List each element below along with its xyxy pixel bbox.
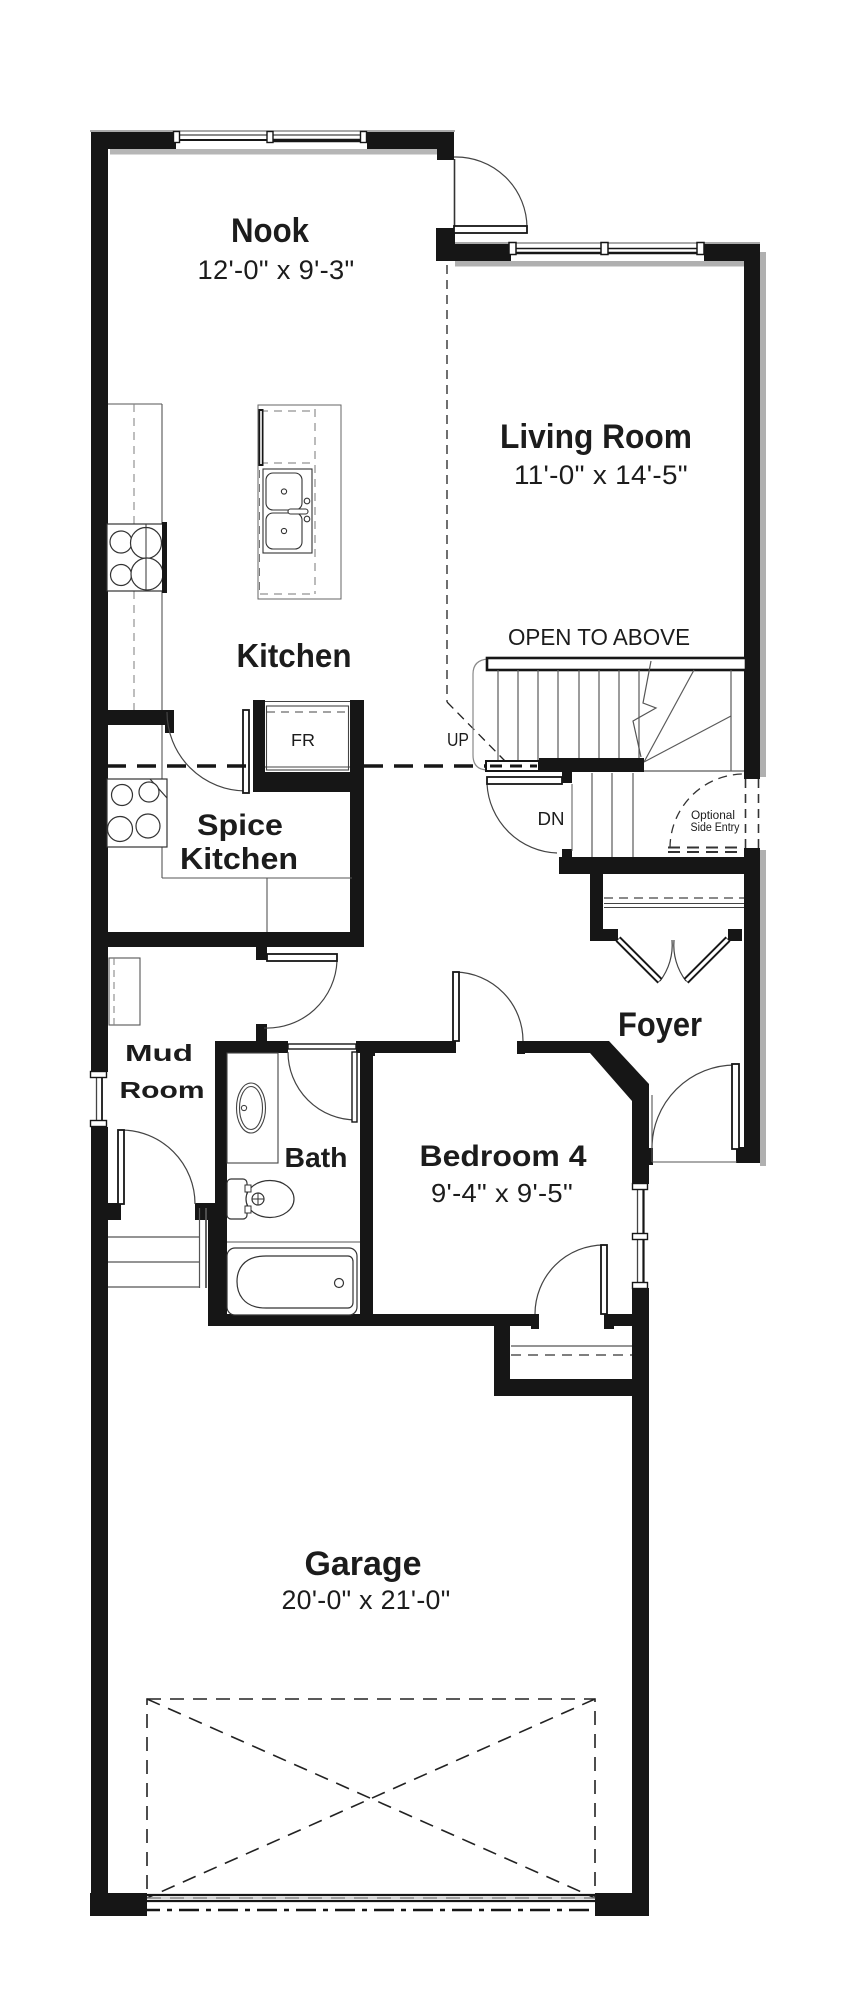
svg-text:Side Entry: Side Entry	[691, 820, 741, 834]
svg-text:11'-0" x 14'-5": 11'-0" x 14'-5"	[514, 460, 688, 490]
svg-text:Kitchen: Kitchen	[237, 637, 352, 674]
svg-text:20'-0" x 21'-0": 20'-0" x 21'-0"	[282, 1585, 451, 1615]
svg-text:Bedroom 4: Bedroom 4	[420, 1140, 588, 1173]
svg-text:Nook: Nook	[231, 212, 309, 250]
svg-text:OPEN TO ABOVE: OPEN TO ABOVE	[508, 624, 690, 650]
svg-text:Foyer: Foyer	[618, 1006, 702, 1044]
svg-text:UP: UP	[447, 730, 469, 750]
svg-text:Kitchen: Kitchen	[180, 841, 298, 876]
svg-text:Bath: Bath	[285, 1142, 348, 1173]
svg-text:12'-0" x 9'-3": 12'-0" x 9'-3"	[198, 255, 355, 285]
svg-text:FR: FR	[291, 730, 315, 750]
svg-text:Living Room: Living Room	[500, 418, 692, 456]
svg-text:Room: Room	[120, 1077, 205, 1103]
svg-text:Spice: Spice	[197, 809, 283, 842]
svg-text:9'-4" x 9'-5": 9'-4" x 9'-5"	[431, 1178, 573, 1208]
svg-text:Garage: Garage	[305, 1545, 422, 1583]
svg-text:DN: DN	[538, 809, 565, 829]
svg-text:Mud: Mud	[125, 1040, 193, 1066]
